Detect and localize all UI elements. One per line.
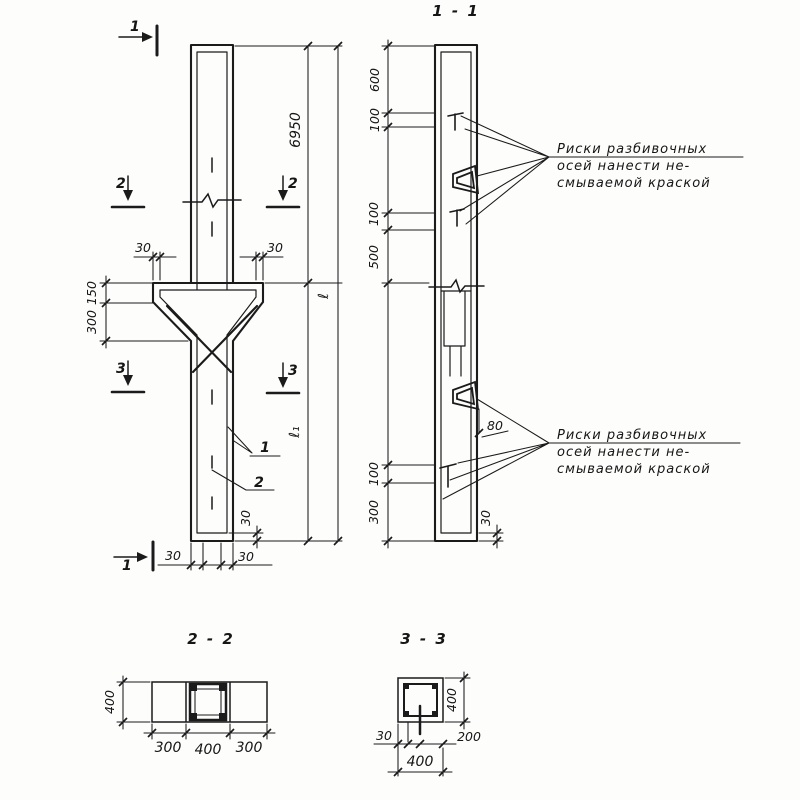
paint-note-bottom-line-1: Риски разбивочных <box>557 428 707 443</box>
section-cut-2-right: 2 <box>267 176 299 207</box>
cut-1-top-label: 1 <box>130 19 140 35</box>
cut-2-left-label: 2 <box>116 176 126 192</box>
section22-dim-height: 400 <box>102 690 117 714</box>
bottom-end-cover-dim <box>229 526 263 548</box>
column-elevation <box>153 45 263 541</box>
cut-1-bottom-label: 1 <box>122 558 132 574</box>
dim-top-100-label: 100 <box>367 108 382 132</box>
dim-mid-100-label: 100 <box>366 202 381 226</box>
cut-3-right-label: 3 <box>288 363 298 379</box>
corbel-cover-dims <box>134 252 283 280</box>
callout-2-label: 2 <box>254 475 264 491</box>
section11-bottom-cover-dim <box>479 525 503 548</box>
column-inner-contour <box>160 52 256 533</box>
lifting-loop-lower <box>453 382 478 409</box>
dim-600-label: 600 <box>367 68 382 92</box>
paint-note-bottom: Риски разбивочных осей нанести не- смыва… <box>557 428 711 477</box>
section-cut-2-left: 2 <box>112 176 144 207</box>
cut-3-left-arrow-icon <box>123 375 133 386</box>
technical-drawing-canvas: 6950 ℓ ℓ₁ 150 300 30 30 30 30 30 1 2 1 <box>0 0 800 800</box>
dim-150-label: 150 <box>84 281 99 305</box>
dim-bottom-cover-right: 30 <box>238 549 254 564</box>
dim-bottom-end-cover: 30 <box>238 510 253 526</box>
cut-2-right-label: 2 <box>288 176 298 192</box>
section22-corbel-outline <box>152 682 267 722</box>
dim-500-label: 500 <box>366 245 381 269</box>
paint-note-top-line-1: Риски разбивочных <box>557 142 707 157</box>
cut-3-left-label: 3 <box>116 361 126 377</box>
dim-length-lower-label: ℓ₁ <box>287 426 303 438</box>
section11-dim-30-label: 30 <box>478 510 493 526</box>
section-1-1-title: 1 - 1 <box>432 2 480 20</box>
dim-corbel-cover-right: 30 <box>267 240 283 255</box>
cut-2-right-arrow-icon <box>278 190 288 201</box>
dim-bot-300-label: 300 <box>366 500 381 524</box>
section22-stirrup <box>195 689 221 715</box>
section11-corbel-hidden <box>441 291 471 376</box>
dim-corbel-cover-left: 30 <box>135 240 151 255</box>
section22-dim-right: 300 <box>236 740 263 756</box>
section22-dim-left: 300 <box>155 740 182 756</box>
section-cut-marks: 1 1 2 2 3 3 <box>112 19 299 574</box>
dim-length-total-label: ℓ <box>316 293 332 300</box>
lifting-loop-upper <box>453 166 478 193</box>
column-outline <box>153 45 263 541</box>
section-cut-3-right: 3 <box>267 363 299 393</box>
callout-leaders <box>212 427 280 490</box>
dim-300-label: 300 <box>84 310 99 334</box>
drawing-sheet: 6950 ℓ ℓ₁ 150 300 30 30 30 30 30 1 2 1 <box>0 0 800 800</box>
dim-80-label: 80 <box>487 418 503 433</box>
section22-dim-mid: 400 <box>195 742 222 758</box>
cut-2-left-arrow-icon <box>123 190 133 201</box>
elevation-dimensions: 6950 ℓ ℓ₁ 150 300 30 30 30 30 30 1 2 <box>84 42 342 570</box>
section11-break-line <box>429 280 484 292</box>
cut-1-bottom-arrow-icon <box>137 552 148 562</box>
corbel-x-brace <box>167 306 257 372</box>
section-cut-1-bottom: 1 <box>114 542 153 574</box>
paint-note-top-line-3: смываемой краской <box>557 176 711 191</box>
paint-note-top-line-2: осей нанести не- <box>557 159 690 174</box>
section33-dim-height: 400 <box>444 688 459 712</box>
section33-dim-width: 400 <box>407 754 434 770</box>
section-3-3-title: 3 - 3 <box>400 630 448 648</box>
section33-dim-cover: 30 <box>376 728 392 743</box>
section22-rebar-dots <box>191 685 225 719</box>
section11-dim-lines <box>382 40 434 548</box>
cut-1-top-arrow-icon <box>142 32 153 42</box>
section-3-3-view: 3 - 3 400 30 200 400 <box>374 630 481 776</box>
section-2-2-view: 2 - 2 400 300 400 300 <box>102 630 275 758</box>
paint-note-top: Риски разбивочных осей нанести не- смыва… <box>557 142 711 191</box>
dim-bottom-cover-left: 30 <box>165 548 181 563</box>
section-cut-1-top: 1 <box>119 19 157 55</box>
callout-1-label: 1 <box>260 440 270 456</box>
dim-6950-label: 6950 <box>288 112 304 148</box>
paint-note-bottom-line-2: осей нанести не- <box>557 445 690 460</box>
dim-bot-100-label: 100 <box>366 462 381 486</box>
section-2-2-title: 2 - 2 <box>187 630 235 648</box>
paint-note-bottom-line-3: смываемой краской <box>557 462 711 477</box>
section-cut-3-left: 3 <box>112 361 144 392</box>
section33-dim-half: 200 <box>457 729 481 744</box>
cut-3-right-arrow-icon <box>278 377 288 388</box>
